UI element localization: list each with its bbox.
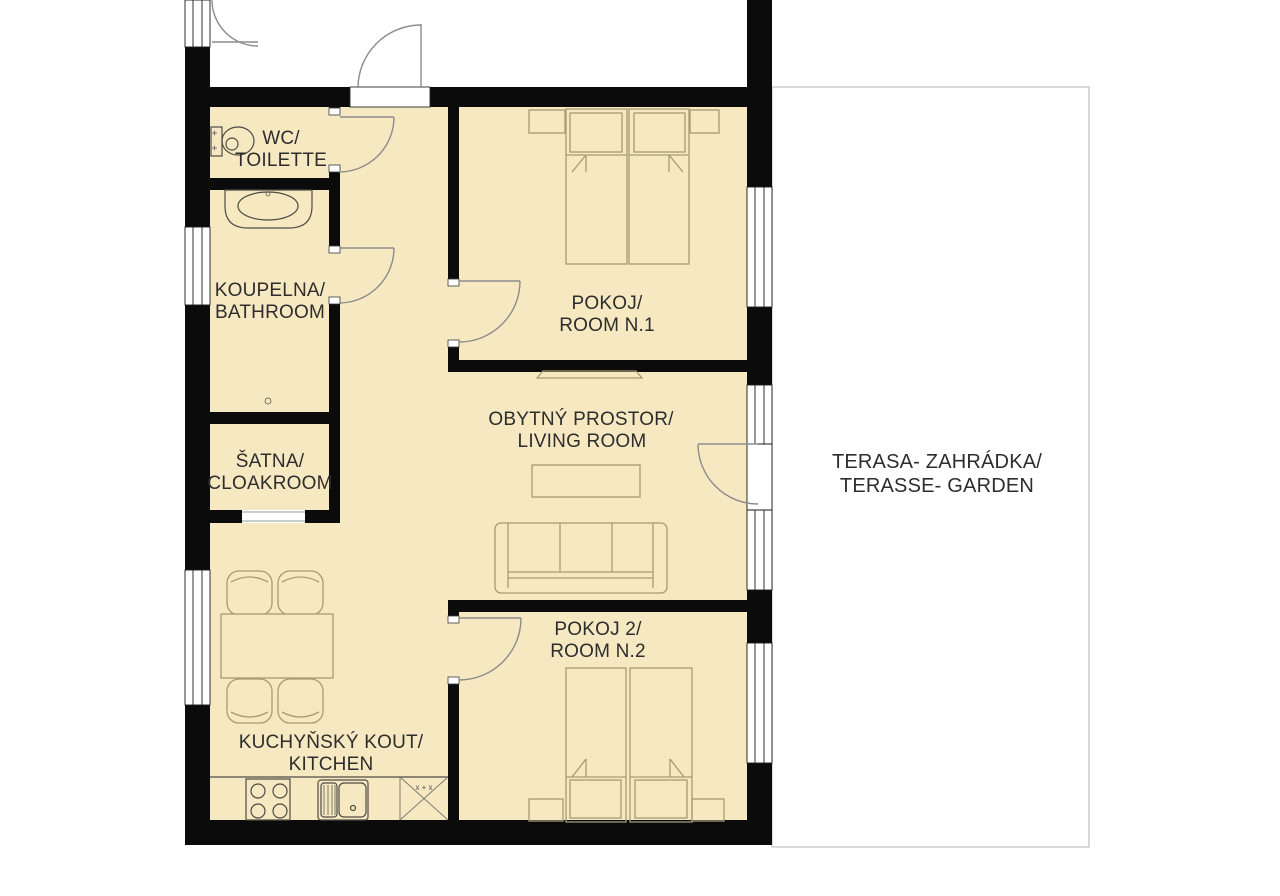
wall-segment — [448, 107, 459, 279]
room-label-room1-line2: ROOM N.1 — [559, 315, 655, 336]
wall-segment — [448, 684, 459, 820]
wall-segment — [747, 0, 772, 187]
wall-segment — [210, 510, 242, 523]
chair — [227, 679, 272, 723]
terrace-door-opening — [748, 444, 771, 510]
room-label-cloakroom-line2: CLOAKROOM — [207, 473, 332, 494]
wall-segment — [448, 600, 772, 612]
room-label-kitchen-line1: KUCHYŇSKÝ KOUT/ — [239, 731, 424, 753]
chair — [227, 571, 272, 615]
room-label-wc-line1: WC/ — [262, 128, 300, 149]
wall-segment — [448, 360, 772, 372]
chair — [278, 571, 323, 615]
window-entry-side — [185, 0, 210, 47]
window-kitchen — [185, 570, 210, 705]
terrace-label-line2: TERASSE- GARDEN — [840, 475, 1034, 497]
wall-segment — [185, 87, 350, 107]
room-label-room2-line2: ROOM N.2 — [550, 641, 646, 662]
window-living-terrace — [747, 385, 772, 590]
terrace-label-line1: TERASA- ZAHRÁDKA/ — [832, 450, 1042, 473]
room-label-wc-line2: TOILETTE — [235, 150, 327, 171]
window-room1 — [747, 187, 772, 307]
room-label-living-line2: LIVING ROOM — [518, 431, 647, 452]
window-bathroom — [185, 227, 210, 305]
chair — [278, 679, 323, 723]
floor-plan-canvas: x + x WC/ TOILETTE KOUPELNA/ BATHROOM ŠA… — [0, 0, 1280, 896]
cloakroom-passage — [242, 510, 305, 523]
wall-segment — [210, 178, 329, 190]
dining-table — [221, 614, 333, 678]
room-label-bathroom-line2: BATHROOM — [215, 302, 325, 323]
wall-segment — [185, 305, 210, 570]
room-label-cloakroom-line1: ŠATNA/ — [236, 450, 305, 472]
entry-opening — [350, 87, 430, 107]
appliance-marks: x + x — [415, 783, 432, 792]
room-label-living-line1: OBYTNÝ PROSTOR/ — [488, 409, 674, 430]
wall-segment — [430, 87, 772, 107]
room-label-room2-line1: POKOJ 2/ — [554, 619, 642, 640]
room-label-kitchen-line2: KITCHEN — [289, 754, 374, 775]
room-label-room1-line1: POKOJ/ — [572, 293, 643, 314]
wall-segment — [210, 412, 340, 424]
window-room2 — [747, 643, 772, 763]
room-label-bathroom-line1: KOUPELNA/ — [215, 280, 326, 301]
wall-segment — [747, 307, 772, 385]
wall-segment — [329, 172, 340, 246]
wall-segment — [185, 820, 772, 845]
wall-segment — [185, 47, 210, 227]
wall-segment — [747, 590, 772, 643]
wall-segment — [448, 612, 459, 616]
